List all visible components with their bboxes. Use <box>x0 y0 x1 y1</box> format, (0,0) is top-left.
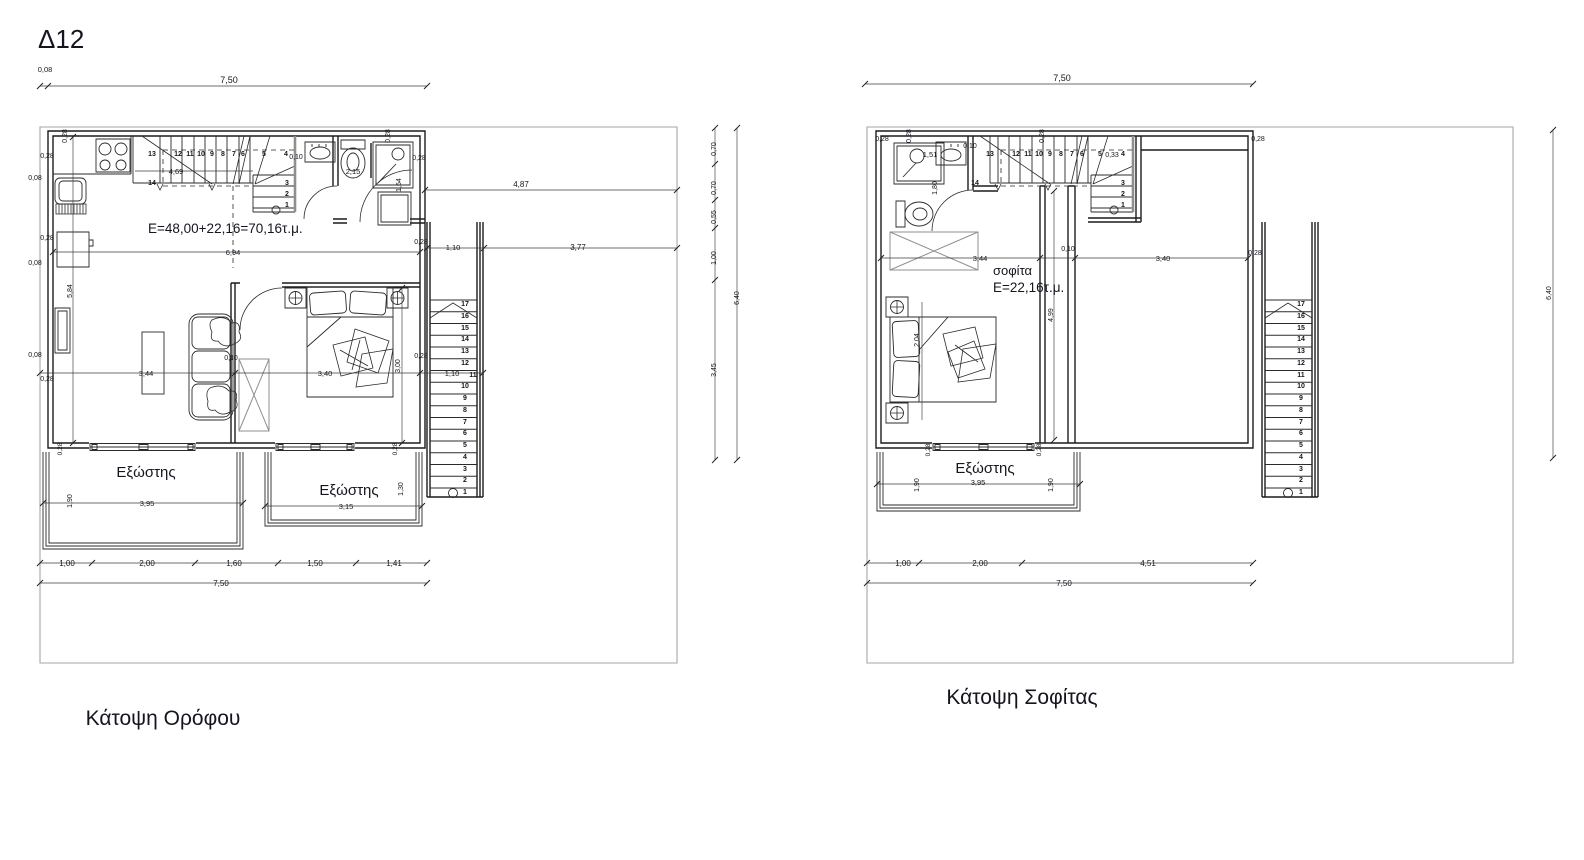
balcony-label: Εξώστης <box>116 464 175 481</box>
external-stairs <box>427 222 483 498</box>
toilet <box>896 201 905 227</box>
stair-step-number: 6 <box>1299 430 1303 437</box>
wardrobe <box>239 359 269 431</box>
stair-step-number: 5 <box>1098 151 1102 158</box>
dim-label: 1,60 <box>226 559 242 568</box>
stair-step-number: 2 <box>285 191 289 198</box>
dim-label: 0,28 <box>385 129 392 143</box>
dim-label: 0,08 <box>28 175 42 182</box>
dim-label: 1,00 <box>711 251 718 265</box>
stair-step-number: 6 <box>463 430 467 437</box>
sink-drainer <box>56 204 86 214</box>
stair-step-number: 8 <box>1059 151 1063 158</box>
blanket <box>333 329 393 387</box>
dim-label: 0,10 <box>224 355 238 362</box>
dim-label: 0,28 <box>392 442 399 455</box>
stair-step-number: 14 <box>148 180 156 187</box>
dim-label: 1,30 <box>398 482 405 496</box>
dim-label: 7,50 <box>213 579 229 588</box>
dim-label: 3,95 <box>140 499 155 508</box>
stair-step-number: 7 <box>1070 151 1074 158</box>
stair-step-number: 8 <box>463 407 467 414</box>
stair-step-number: 2 <box>1299 477 1303 484</box>
attic-room-label: σοφίτα <box>993 263 1033 278</box>
dim-label: 0,28 <box>1251 136 1265 143</box>
dim-label: 3,40 <box>1156 254 1171 263</box>
dim-label: 0,28 <box>57 442 64 455</box>
stair-step-number: 6 <box>1080 151 1084 158</box>
dim-label: 7,50 <box>1056 579 1072 588</box>
dim-label: 0,28 <box>414 353 428 360</box>
radiator <box>55 308 70 353</box>
dim-label: 2,04 <box>914 333 921 347</box>
kitchen-sink <box>55 178 86 204</box>
stair-step-number: 15 <box>1297 325 1305 332</box>
door-arc <box>360 170 412 222</box>
stair-step-number: 10 <box>1297 383 1305 390</box>
dim-label: 0,28 <box>40 376 54 383</box>
stair-post <box>1284 489 1293 498</box>
stair-step-number: 13 <box>986 151 994 158</box>
external-stairs <box>1262 222 1318 498</box>
door-arc <box>304 186 337 219</box>
stair-step-number: 12 <box>174 151 182 158</box>
dim-label: 0,28 <box>875 136 889 143</box>
dim-label: 0,28 <box>1039 129 1046 143</box>
dim-label: 6,94 <box>226 248 241 257</box>
stair-step-number: 4 <box>1121 151 1125 158</box>
dim-label: 3,15 <box>339 502 354 511</box>
stair-step-number: 7 <box>463 419 467 426</box>
blanket <box>943 327 996 382</box>
attic-plan <box>862 81 1556 663</box>
stair-post <box>272 206 280 214</box>
fridge <box>57 232 93 267</box>
dim-label: 1,00 <box>895 559 911 568</box>
dim-label: 0,28 <box>1248 250 1262 257</box>
stove-burner <box>115 143 127 155</box>
stair-step-number: 1 <box>1299 489 1303 496</box>
stove-burner <box>100 160 110 170</box>
dim-label: 4,69 <box>169 167 184 176</box>
stair-step-number: 16 <box>1297 313 1305 320</box>
dim-label: 0,10 <box>1061 246 1075 253</box>
dim-label: 0,33 <box>1105 152 1119 159</box>
door-arc <box>932 190 973 231</box>
stair-step-number: 1 <box>1121 202 1125 209</box>
stair-step-number: 11 <box>186 151 194 158</box>
internal-stairs <box>980 136 1133 214</box>
stair-step-number: 6 <box>241 151 245 158</box>
water-heater <box>378 192 411 225</box>
dim-label: 7,50 <box>220 75 238 85</box>
wardrobe <box>890 232 978 270</box>
pillow <box>309 291 346 315</box>
stair-step-number: 13 <box>461 348 469 355</box>
cushion <box>210 318 241 346</box>
pillow <box>349 291 386 315</box>
balcony <box>43 452 422 549</box>
stair-step-number: 4 <box>284 151 288 158</box>
stair-step-number: 1 <box>463 489 467 496</box>
stair-post <box>449 489 458 498</box>
dim-label: 0,28 <box>40 153 54 160</box>
dim-label: 1,90 <box>67 494 74 508</box>
exterior-walls <box>876 131 1253 448</box>
dim-label: 0,28 <box>412 155 426 162</box>
dim-label: 1,10 <box>446 243 461 252</box>
bedroom <box>239 287 408 431</box>
dim-label: 3,44 <box>973 254 988 263</box>
dim-label: 6,40 <box>1546 286 1553 300</box>
shower <box>373 142 413 188</box>
dim-label: 0,70 <box>711 142 718 156</box>
dim-label: 0,10 <box>289 154 303 161</box>
dim-label: 4,99 <box>1048 308 1055 322</box>
attic-plan-caption: Κάτοψη Σοφίτας <box>946 686 1097 709</box>
stair-step-number: 10 <box>1035 151 1043 158</box>
dim-label: 2,15 <box>346 167 361 176</box>
dim-label: 0,28 <box>1036 443 1043 456</box>
dim-label: 1,50 <box>307 559 323 568</box>
dim-label: 4,51 <box>1140 559 1156 568</box>
floor-plans-svg: Δ12Κάτοψη ΟρόφουE=48,00+22,16=70,16τ.μ.Ε… <box>0 0 1584 860</box>
stair-step-number: 9 <box>1299 395 1303 402</box>
stair-step-number: 3 <box>1121 180 1125 187</box>
balcony-label: Εξώστης <box>955 460 1014 477</box>
dim-label: 0,28 <box>925 443 932 456</box>
bathroom <box>890 142 978 270</box>
bath-sink <box>936 142 966 165</box>
stair-step-number: 10 <box>461 383 469 390</box>
dim-label: 0,28 <box>62 129 69 143</box>
dim-label: 0,28 <box>906 129 913 143</box>
stair-step-number: 3 <box>1299 466 1303 473</box>
stair-step-number: 14 <box>461 336 469 343</box>
stair-step-number: 5 <box>262 151 266 158</box>
stair-step-number: 13 <box>148 151 156 158</box>
lot-boundary <box>40 127 677 663</box>
balcony-label: Εξώστης <box>319 482 378 499</box>
floor-plan-caption: Κάτοψη Ορόφου <box>86 707 241 730</box>
dim-label: 0,55 <box>711 210 718 224</box>
floor-area-label: E=48,00+22,16=70,16τ.μ. <box>148 221 303 236</box>
dim-label: 0,10 <box>963 143 977 150</box>
dim-label: 3,40 <box>318 369 333 378</box>
stair-step-number: 12 <box>1012 151 1020 158</box>
pillow <box>892 360 920 397</box>
door-arc <box>240 288 282 330</box>
dim-label: 5,84 <box>67 284 74 298</box>
dim-label: 3,00 <box>395 359 402 373</box>
dim-label: 6,40 <box>734 291 741 305</box>
stair-post <box>1110 206 1118 214</box>
stove-burner <box>116 160 126 170</box>
dim-label: 0,28 <box>40 235 54 242</box>
stair-step-number: 17 <box>1297 301 1305 308</box>
dim-label: 1,54 <box>396 178 403 192</box>
dim-label: 1,80 <box>932 181 939 195</box>
floor-plan-labels: Κάτοψη ΟρόφουE=48,00+22,16=70,16τ.μ.Εξώσ… <box>28 65 741 730</box>
coffee-table <box>142 332 164 394</box>
stair-step-number: 16 <box>461 313 469 320</box>
stair-step-number: 7 <box>1299 419 1303 426</box>
stair-step-number: 12 <box>1297 360 1305 367</box>
stair-step-number: 12 <box>461 360 469 367</box>
stair-step-number: 7 <box>232 151 236 158</box>
stair-step-number: 1 <box>285 202 289 209</box>
stair-step-number: 8 <box>221 151 225 158</box>
stair-step-number: 4 <box>1299 454 1303 461</box>
dim-label: 1,10 <box>445 369 460 378</box>
labels-layer: Δ12Κάτοψη ΟρόφουE=48,00+22,16=70,16τ.μ.Ε… <box>28 24 1553 730</box>
dim-label: 3,95 <box>971 478 986 487</box>
stair-step-number: 5 <box>1299 442 1303 449</box>
bedroom <box>886 297 996 423</box>
kitchen <box>53 136 131 353</box>
stair-step-number: 9 <box>463 395 467 402</box>
dim-label: 4,87 <box>513 180 529 189</box>
dim-label: 0,70 <box>711 181 718 195</box>
internal-stairs <box>133 136 295 268</box>
stair-step-number: 9 <box>210 151 214 158</box>
dim-label: 7,50 <box>1053 73 1071 83</box>
stair-step-number: 9 <box>1048 151 1052 158</box>
stair-step-number: 11 <box>1297 372 1305 379</box>
stair-step-number: 8 <box>1299 407 1303 414</box>
dim-label: 0,28 <box>414 239 428 246</box>
dim-label: 2,00 <box>972 559 988 568</box>
stair-step-number: 10 <box>197 151 205 158</box>
stair-step-number: 11 <box>469 372 477 379</box>
stove-burner <box>99 143 111 155</box>
attic-area-label: E=22,16τ.μ. <box>993 280 1064 295</box>
stair-step-number: 17 <box>461 301 469 308</box>
dimension-lines <box>40 86 737 583</box>
dim-label: 1,90 <box>914 478 921 492</box>
stair-step-number: 3 <box>463 466 467 473</box>
dim-label: 0,08 <box>28 352 42 359</box>
stair-step-number: 5 <box>463 442 467 449</box>
stair-step-number: 3 <box>285 180 289 187</box>
stair-step-number: 14 <box>971 180 979 187</box>
dim-label: 1,51 <box>923 150 938 159</box>
dim-label: 0,08 <box>38 65 53 74</box>
dim-label: 3,44 <box>139 369 154 378</box>
stair-step-number: 13 <box>1297 348 1305 355</box>
dim-label: 1,00 <box>59 559 75 568</box>
living-room <box>142 314 241 420</box>
stair-step-number: 2 <box>1121 191 1125 198</box>
stair-step-number: 11 <box>1024 151 1032 158</box>
bed <box>890 317 996 402</box>
sheet-labels: Δ12 <box>38 24 84 54</box>
dim-label: 1,90 <box>1048 478 1055 492</box>
dim-label: 3,45 <box>711 363 718 377</box>
stair-step-number: 15 <box>461 325 469 332</box>
drawing-sheet: Δ12Κάτοψη ΟρόφουE=48,00+22,16=70,16τ.μ.Ε… <box>0 0 1584 860</box>
dim-label: 0,08 <box>28 260 42 267</box>
attic-plan-labels: Κάτοψη ΣοφίταςσοφίταE=22,16τ.μ.Εξώστης7,… <box>875 73 1553 709</box>
stair-step-number: 14 <box>1297 336 1305 343</box>
dim-label: 2,00 <box>139 559 155 568</box>
stair-step-number: 2 <box>463 477 467 484</box>
lot-boundary <box>867 127 1513 663</box>
dim-label: 1,41 <box>386 559 402 568</box>
dim-label: 3,77 <box>570 243 586 252</box>
stair-step-number: 4 <box>463 454 467 461</box>
sheet-code: Δ12 <box>38 24 84 54</box>
